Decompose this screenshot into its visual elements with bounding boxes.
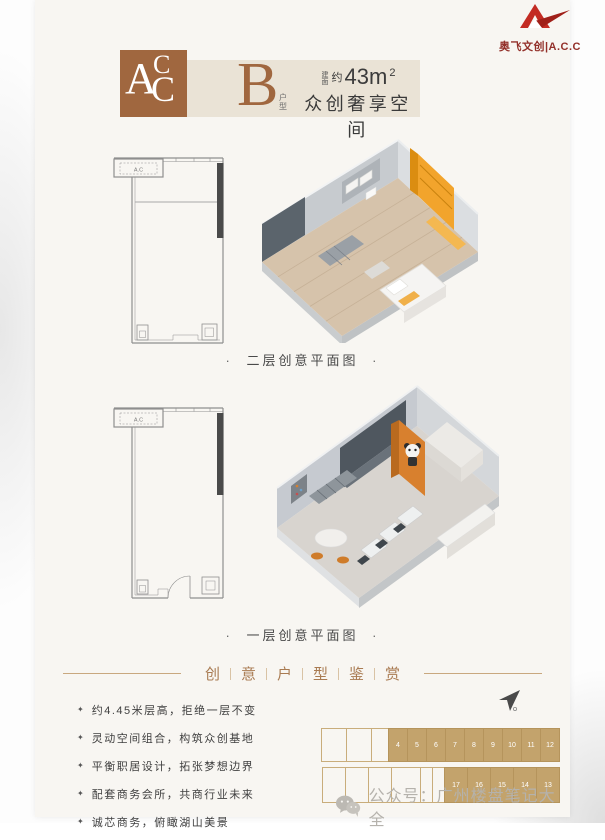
divider-line-left [63, 673, 181, 674]
unit-cell-empty [346, 728, 372, 762]
unit-cell-empty [371, 728, 389, 762]
caption-1f: · 一层创意平面图 · [35, 625, 570, 644]
grid-row-top: 4 5 6 7 8 9 10 11 12 [308, 728, 560, 762]
page-background: 奥飞文创|A.C.C A C C B 户型 建面 约 43m 2 众创奢享空间 [0, 0, 605, 823]
feature-text: 灵动空间组合，构筑众创基地 [92, 730, 255, 746]
caption-1f-text: 一层创意平面图 [246, 628, 358, 643]
feature-text: 约4.45米层高，拒绝一层不变 [92, 702, 257, 718]
divider-char: 型 [303, 663, 338, 684]
star-bullet-icon: ✦ [77, 705, 84, 714]
brand-logo-text: 奥飞文创|A.C.C [475, 38, 605, 54]
area-value: 43m [345, 66, 388, 88]
feature-item: ✦ 约4.45米层高，拒绝一层不变 [77, 700, 257, 719]
round-table [315, 529, 347, 547]
brand-logo-icon [508, 2, 572, 32]
unit-cell: 12 [540, 728, 560, 762]
unit-cell: 5 [407, 728, 427, 762]
unit-cell-empty [321, 728, 347, 762]
divider-line-right [424, 673, 542, 674]
area-superscript: 2 [389, 67, 395, 79]
feature-item: ✦ 平衡职居设计，拓张梦想边界 [77, 756, 257, 775]
divider-char: 鉴 [339, 663, 374, 684]
feature-item: ✦ 诚芯商务，俯瞰湖山美景 [77, 812, 257, 831]
star-bullet-icon: ✦ [77, 789, 84, 798]
wechat-icon [335, 794, 361, 818]
unit-cell: 7 [445, 728, 465, 762]
caption-dot: · [226, 353, 233, 368]
divider-char: 户 [267, 663, 302, 684]
feature-item: ✦ 灵动空间组合，构筑众创基地 [77, 728, 257, 747]
ac-platform-label-2f: A.C [134, 168, 143, 174]
structural-wall [217, 413, 224, 495]
area-line: 建面 约 43m 2 [299, 63, 417, 88]
feature-text: 配套商务会所，共商行业未来 [92, 786, 255, 802]
area-approx: 约 [332, 69, 343, 85]
unit-cell: 4 [388, 728, 408, 762]
north-arrow-icon [497, 688, 523, 716]
floorplan-1f-drawing: A.C [98, 400, 238, 605]
brand-logo: 奥飞文创|A.C.C [475, 2, 605, 54]
divider-char: 赏 [375, 663, 410, 684]
caption-2f-text: 二层创意平面图 [246, 353, 358, 368]
caption-2f: · 二层创意平面图 · [35, 350, 570, 369]
unit-cell: 10 [502, 728, 522, 762]
unit-cell: 11 [521, 728, 541, 762]
render-2f-isometric [230, 138, 500, 343]
caption-dot: · [372, 353, 379, 368]
unit-header-right: 建面 约 43m 2 众创奢享空间 [299, 63, 417, 142]
ac-platform-label-1f: A.C [134, 418, 143, 424]
unit-tagline: 众创奢享空间 [299, 90, 417, 142]
acc-letter-c2: C [151, 71, 175, 107]
structural-wall [217, 163, 224, 238]
feature-item: ✦ 配套商务会所，共商行业未来 [77, 784, 257, 803]
caption-dot: · [372, 628, 379, 643]
acc-badge: A C C [120, 50, 187, 117]
section-divider: 创 意 户 型 鉴 赏 [63, 663, 542, 684]
unit-letter-suffix: 户型 [279, 93, 289, 111]
unit-cell: 6 [426, 728, 446, 762]
divider-char: 创 [195, 663, 230, 684]
feature-list: ✦ 约4.45米层高，拒绝一层不变 ✦ 灵动空间组合，构筑众创基地 ✦ 平衡职居… [77, 700, 257, 840]
star-bullet-icon: ✦ [77, 817, 84, 826]
star-bullet-icon: ✦ [77, 733, 84, 742]
caption-dot: · [226, 628, 233, 643]
area-prefix: 建面 [321, 72, 330, 86]
star-bullet-icon: ✦ [77, 761, 84, 770]
unit-cell: 8 [464, 728, 484, 762]
feature-text: 平衡职居设计，拓张梦想边界 [92, 758, 255, 774]
divider-title: 创 意 户 型 鉴 赏 [195, 663, 410, 684]
divider-char: 意 [231, 663, 266, 684]
unit-letter: B [237, 54, 278, 116]
feature-text: 诚芯商务，俯瞰湖山美景 [92, 814, 230, 830]
floorplan-2f-drawing: A.C [98, 150, 238, 350]
unit-cell: 9 [483, 728, 503, 762]
poster: 奥飞文创|A.C.C A C C B 户型 建面 约 43m 2 众创奢享空间 [35, 0, 570, 817]
render-1f-isometric [247, 378, 522, 618]
unit-header-strip: B 户型 建面 约 43m 2 众创奢享空间 [187, 60, 420, 117]
